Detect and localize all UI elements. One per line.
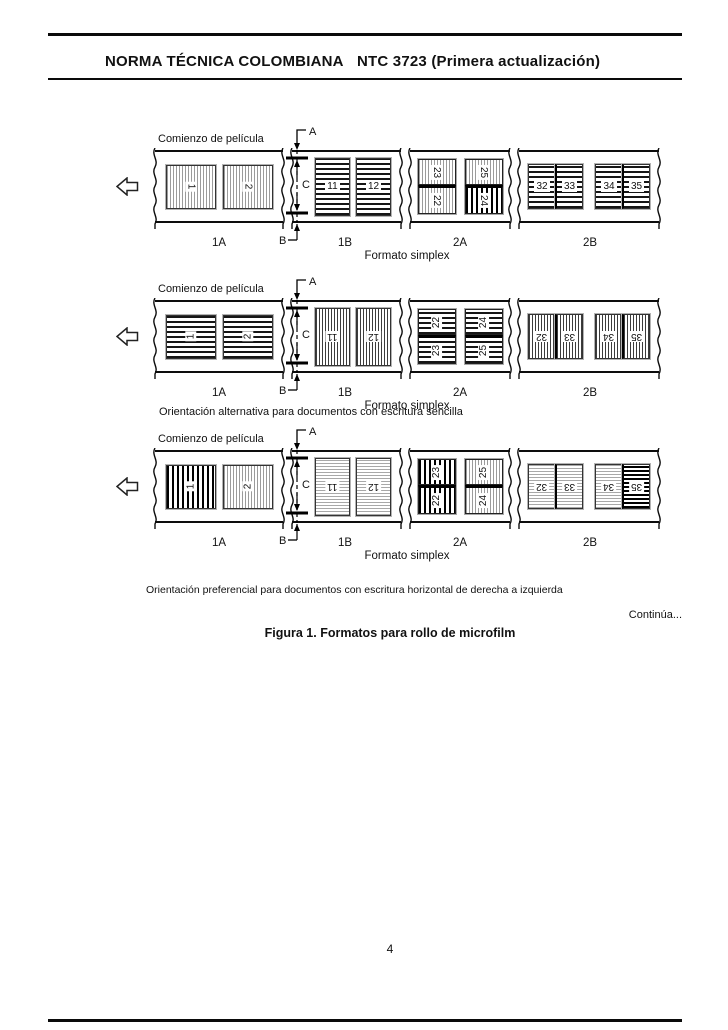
frame-pair: 3233 <box>528 314 583 359</box>
bottom-rule <box>48 1019 682 1022</box>
section-label-1B: 1B <box>338 237 352 249</box>
frame-number: 22 <box>431 193 442 208</box>
frame-number: 1 <box>185 332 196 342</box>
microfilm-frame: 24 <box>465 309 503 335</box>
frame-number: 1 <box>185 182 196 192</box>
film-torn-edge <box>505 148 515 229</box>
frame-number: 1 <box>185 482 196 492</box>
frame-number: 12 <box>366 331 381 342</box>
film-torn-edge <box>150 298 160 379</box>
frame-number: 25 <box>478 164 489 179</box>
microfilm-frame: 32 <box>528 314 556 359</box>
marker-c-label: C <box>302 479 310 491</box>
marker-a-label: A <box>309 276 317 288</box>
film-segment-2B: 32333435 <box>519 450 659 523</box>
film-torn-edge <box>514 148 524 229</box>
standard-name: NORMA TÉCNICA COLOMBIANA <box>105 53 344 70</box>
frame-pair: 3435 <box>595 164 650 209</box>
continues-label: Continúa... <box>629 609 682 621</box>
microfilm-frame: 34 <box>595 164 623 209</box>
frame-number: 32 <box>534 331 549 342</box>
microfilm-frame: 12 <box>356 158 391 216</box>
film-strip-1: Comienzo de película12111223222524323334… <box>0 133 728 283</box>
duplex-frame-column: 2425 <box>464 308 504 365</box>
film-segment-1A: 12 <box>155 300 283 373</box>
film-strip-3: Comienzo de película12111223222524323334… <box>0 433 728 583</box>
film-torn-edge <box>150 148 160 229</box>
marker-c-label: C <box>302 179 310 191</box>
microfilm-frame: 33 <box>555 164 583 209</box>
frame-number: 25 <box>478 343 489 358</box>
frame-number: 33 <box>562 331 577 342</box>
frame-number: 2 <box>242 482 253 492</box>
microfilm-frame: 22 <box>418 185 456 214</box>
frame-number: 23 <box>431 464 442 479</box>
frame-number: 2 <box>242 182 253 192</box>
section-label-2A: 2A <box>453 237 467 249</box>
film-torn-edge <box>396 448 406 529</box>
microfilm-frame: 22 <box>418 309 456 335</box>
marker-a-label: A <box>309 426 317 438</box>
format-simplex-label: Formato simplex <box>155 250 659 262</box>
section-label-2B: 2B <box>583 237 597 249</box>
microfilm-frame: 24 <box>465 185 503 214</box>
duplex-frame-column: 2322 <box>417 158 457 215</box>
microfilm-frame: 2 <box>223 315 273 359</box>
film-torn-edge <box>405 148 415 229</box>
frame-number: 24 <box>478 314 489 329</box>
film-torn-edge <box>396 148 406 229</box>
microfilm-frame: 23 <box>418 335 456 364</box>
frame-number: 33 <box>562 181 577 192</box>
section-label-2A: 2A <box>453 387 467 399</box>
frame-number: 34 <box>601 481 616 492</box>
section-label-2B: 2B <box>583 537 597 549</box>
note-preferential-orientation: Orientación preferencial para documentos… <box>146 584 563 596</box>
microfilm-frame: 25 <box>465 459 503 485</box>
film-torn-edge <box>405 298 415 379</box>
film-torn-edge <box>654 148 664 229</box>
frame-number: 23 <box>431 164 442 179</box>
frame-number: 33 <box>562 481 577 492</box>
frame-number: 35 <box>629 181 644 192</box>
film-start-label: Comienzo de película <box>158 283 264 295</box>
section-label-1A: 1A <box>212 537 226 549</box>
frame-number: 22 <box>431 314 442 329</box>
figure-caption: Figura 1. Formatos para rollo de microfi… <box>52 626 728 640</box>
microfilm-frame: 2 <box>223 165 273 209</box>
frame-number: 34 <box>601 331 616 342</box>
film-start-label: Comienzo de película <box>158 133 264 145</box>
film-segment-2A: 22232425 <box>410 300 510 373</box>
microfilm-frame: 35 <box>622 464 650 509</box>
film-segment-2B: 32333435 <box>519 150 659 223</box>
duplex-frame-column: 2524 <box>464 158 504 215</box>
section-label-2B: 2B <box>583 387 597 399</box>
section-label-1B: 1B <box>338 537 352 549</box>
frame-pair: 3435 <box>595 314 650 359</box>
film-torn-edge <box>505 448 515 529</box>
standard-code: NTC 3723 (Primera actualización) <box>357 53 600 70</box>
document-page: NORMA TÉCNICA COLOMBIANA NTC 3723 (Prime… <box>0 0 728 1030</box>
frame-number: 34 <box>601 181 616 192</box>
frame-number: 24 <box>478 493 489 508</box>
frame-number: 11 <box>325 181 339 192</box>
microfilm-frame: 32 <box>528 464 556 509</box>
film-torn-edge <box>505 298 515 379</box>
microfilm-frame: 25 <box>465 335 503 364</box>
frame-number: 23 <box>431 343 442 358</box>
marker-b-label: B <box>279 385 286 397</box>
frame-number: 22 <box>431 493 442 508</box>
microfilm-frame: 34 <box>595 464 623 509</box>
film-torn-edge <box>405 448 415 529</box>
marker-a-label: A <box>309 126 317 138</box>
frame-number: 35 <box>629 481 644 492</box>
frame-number: 24 <box>478 193 489 208</box>
section-label-2A: 2A <box>453 537 467 549</box>
film-torn-edge <box>654 298 664 379</box>
film-torn-edge <box>396 298 406 379</box>
frame-number: 2 <box>242 332 253 342</box>
film-strip-row: 1211122223242532333435 <box>155 300 659 373</box>
film-torn-edge <box>514 298 524 379</box>
microfilm-frame: 12 <box>356 308 391 366</box>
frame-pair: 3435 <box>595 464 650 509</box>
frame-number: 25 <box>478 464 489 479</box>
microfilm-frame: 23 <box>418 459 456 485</box>
frame-pair: 3233 <box>528 464 583 509</box>
film-strip-row: 1211122322252432333435 <box>155 150 659 223</box>
page-number: 4 <box>52 942 728 956</box>
film-segment-2A: 23222524 <box>410 150 510 223</box>
note-alternative-orientation: Orientación alternativa para documentos … <box>159 406 463 418</box>
microfilm-frame: 35 <box>622 164 650 209</box>
film-torn-edge <box>654 448 664 529</box>
film-direction-arrow-icon <box>116 477 139 496</box>
film-torn-edge <box>514 448 524 529</box>
microfilm-frame: 23 <box>418 159 456 185</box>
microfilm-frame: 32 <box>528 164 556 209</box>
marker-b-label: B <box>279 235 286 247</box>
marker-b-label: B <box>279 535 286 547</box>
microfilm-frame: 22 <box>418 485 456 514</box>
marker-c-label: C <box>302 329 310 341</box>
duplex-frame-column: 2322 <box>417 458 457 515</box>
film-segment-2A: 23222524 <box>410 450 510 523</box>
microfilm-frame: 25 <box>465 159 503 185</box>
duplex-frame-column: 2223 <box>417 308 457 365</box>
frame-number: 12 <box>366 181 381 192</box>
frame-number: 11 <box>325 331 339 342</box>
dimension-marker-abc: ACB <box>279 426 325 550</box>
microfilm-frame: 24 <box>465 485 503 514</box>
top-rule <box>48 33 682 36</box>
dimension-marker-abc: ACB <box>279 276 325 400</box>
microfilm-frame: 1 <box>166 315 216 359</box>
dimension-marker-abc: ACB <box>279 126 325 250</box>
film-start-label: Comienzo de película <box>158 433 264 445</box>
microfilm-frame: 1 <box>166 465 216 509</box>
microfilm-frame: 34 <box>595 314 623 359</box>
microfilm-frame: 33 <box>555 464 583 509</box>
microfilm-frame: 1 <box>166 165 216 209</box>
film-segment-1A: 12 <box>155 450 283 523</box>
film-direction-arrow-icon <box>116 327 139 346</box>
frame-pair: 3233 <box>528 164 583 209</box>
frame-number: 32 <box>534 181 549 192</box>
microfilm-frame: 33 <box>555 314 583 359</box>
microfilm-frame: 35 <box>622 314 650 359</box>
duplex-frame-column: 2524 <box>464 458 504 515</box>
header-rule <box>48 78 682 80</box>
film-torn-edge <box>150 448 160 529</box>
microfilm-frame: 12 <box>356 458 391 516</box>
film-segment-1A: 12 <box>155 150 283 223</box>
frame-number: 12 <box>366 481 381 492</box>
frame-number: 35 <box>629 331 644 342</box>
film-direction-arrow-icon <box>116 177 139 196</box>
frame-number: 11 <box>325 481 339 492</box>
film-strip-row: 1211122322252432333435 <box>155 450 659 523</box>
section-label-1B: 1B <box>338 387 352 399</box>
section-label-1A: 1A <box>212 237 226 249</box>
format-simplex-label: Formato simplex <box>155 550 659 562</box>
film-segment-2B: 32333435 <box>519 300 659 373</box>
section-label-1A: 1A <box>212 387 226 399</box>
frame-number: 32 <box>534 481 549 492</box>
microfilm-frame: 2 <box>223 465 273 509</box>
